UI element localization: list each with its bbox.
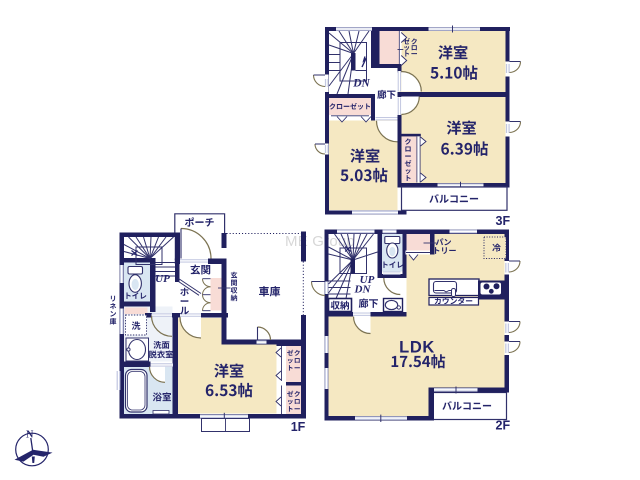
svg-text:1F: 1F [291,420,306,434]
svg-text:UP: UP [155,273,170,285]
svg-text:2F: 2F [496,419,511,433]
svg-text:DN: DN [352,78,370,90]
svg-text:DN: DN [354,284,372,296]
svg-text:3F: 3F [496,214,511,228]
svg-text:LDK: LDK [399,339,435,357]
svg-text:N: N [26,430,34,441]
